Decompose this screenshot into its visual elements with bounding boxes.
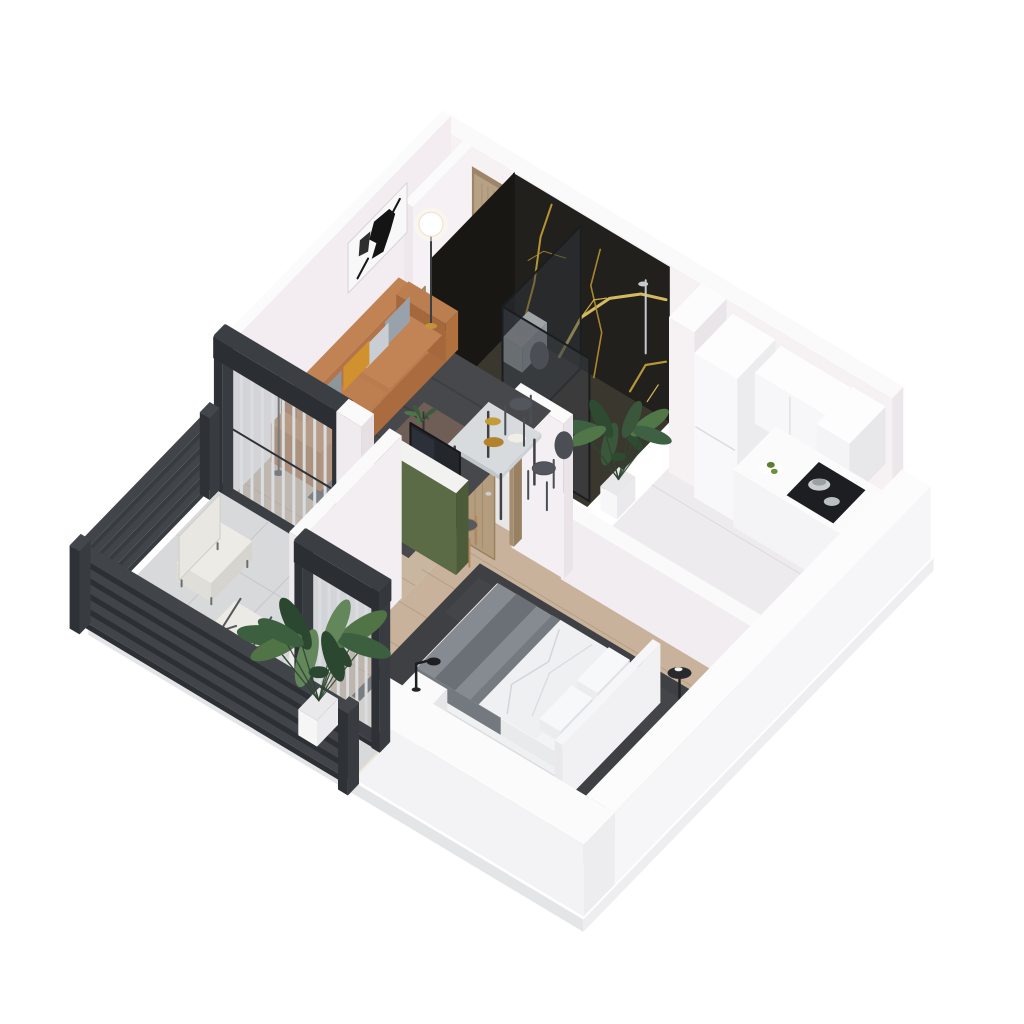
isometric-apartment-svg	[0, 0, 1024, 1024]
lime-2	[771, 469, 778, 474]
dining-bowl-gold-2	[484, 437, 504, 447]
dining-bowl-gold-1	[485, 417, 501, 425]
balcony-railing-end-post	[338, 696, 359, 795]
globe-floor-lamp-base	[425, 323, 437, 329]
desk-lamp-head	[427, 658, 441, 666]
cooking-pot-small	[824, 497, 840, 506]
bedside-table-decor	[675, 667, 683, 671]
balcony-railing-west-post	[200, 402, 220, 500]
lime-1	[767, 462, 775, 468]
shower-head	[638, 282, 648, 287]
apartment-floorplan-render	[0, 0, 1024, 1024]
bedroom-door-handle	[485, 492, 491, 496]
desk-lamp-base	[412, 687, 421, 691]
balcony-railing-corner-post	[70, 534, 91, 635]
globe-floor-lamp	[419, 212, 443, 236]
cooking-pot-lid	[812, 479, 826, 486]
